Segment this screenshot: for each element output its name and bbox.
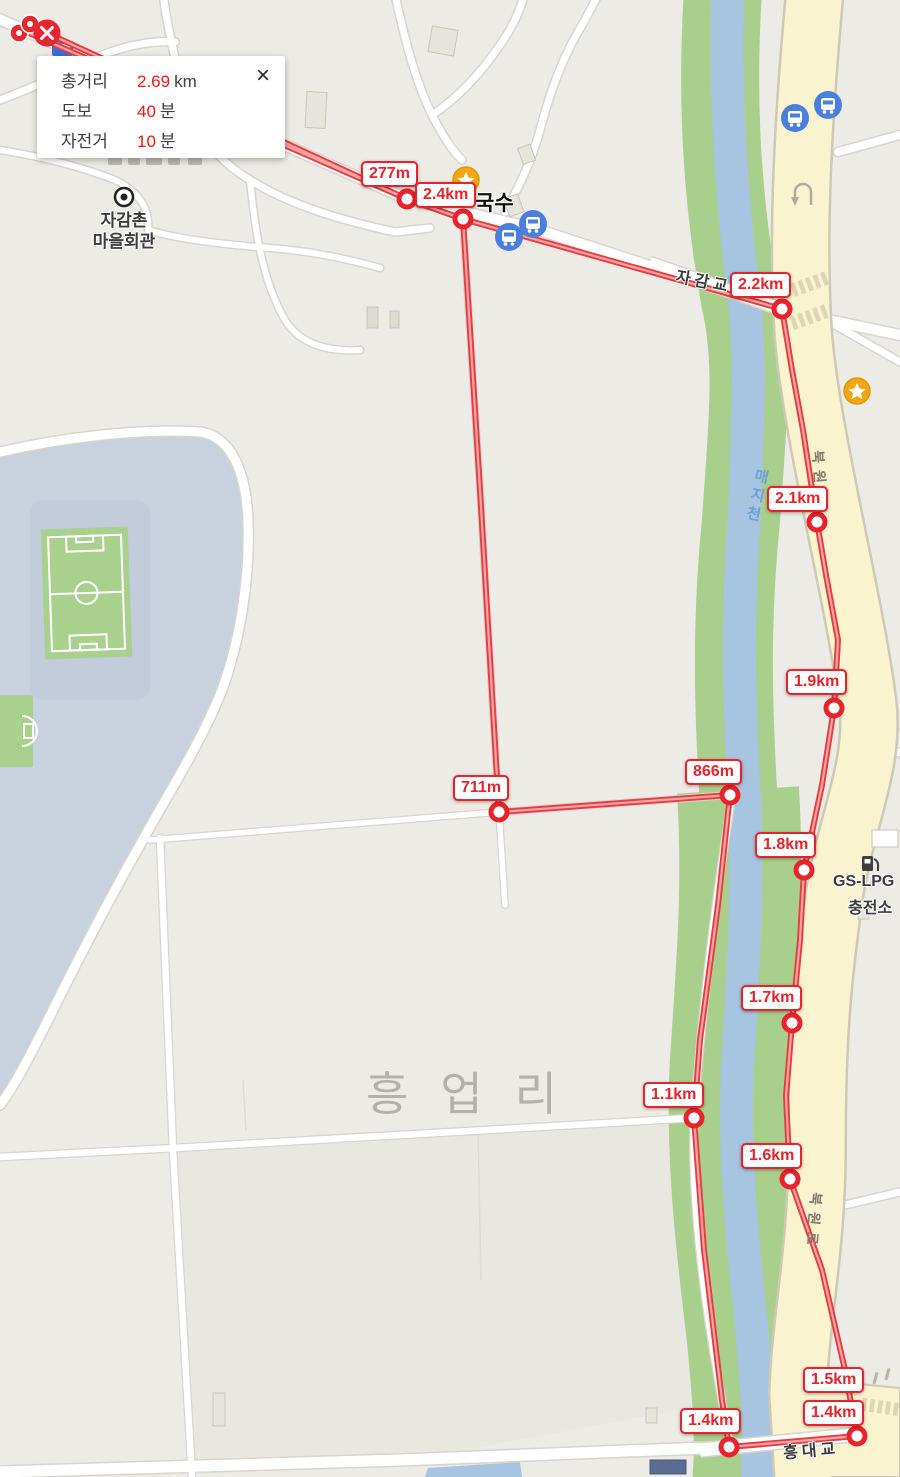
route-waypoint[interactable] [784, 1015, 800, 1031]
soccer-field-partial [0, 695, 37, 767]
route-waypoint[interactable] [809, 514, 825, 530]
field-region [178, 1120, 722, 1468]
total-distance-label: 총거리 [61, 71, 137, 93]
distance-label-1-6km: 1.6km [741, 1143, 802, 1169]
bus-stop-icon[interactable] [814, 91, 842, 119]
popup-close-button[interactable]: × [251, 64, 275, 88]
bus-stop-icon[interactable] [781, 104, 809, 132]
bridge-label-heungdae: 흥대교 [782, 1435, 840, 1464]
route-summary-popup: 총거리 2.69 km 도보 40 분 자전거 10 분 × [37, 56, 285, 158]
bicycle-time-row: 자전거 10 분 [61, 131, 271, 153]
noodle-shop-label: 국수 [475, 187, 514, 217]
route-endpoint-dot [27, 21, 33, 27]
gas-station-label-line1: GS-LPG [833, 873, 894, 891]
star-poi-icon[interactable] [844, 378, 870, 404]
distance-label-1-9km: 1.9km [786, 669, 847, 695]
route-waypoint[interactable] [721, 1439, 737, 1455]
route-waypoint[interactable] [849, 1428, 865, 1444]
route-waypoint[interactable] [722, 787, 738, 803]
walk-time-value: 40 [137, 101, 156, 123]
distance-label-1-1km: 1.1km [643, 1082, 704, 1108]
bicycle-time-label: 자전거 [61, 131, 137, 153]
district-label: 흥업리 [366, 1058, 589, 1124]
total-distance-row: 총거리 2.69 km [61, 71, 271, 93]
map-canvas[interactable]: 자감촌 마을회관 국수 자감교 흥대교 흥업리 매지천 북원로 북원로 GS-L… [0, 0, 900, 1477]
route-waypoint[interactable] [686, 1110, 702, 1126]
distance-label-1-7km: 1.7km [741, 985, 802, 1011]
route-waypoint[interactable] [796, 862, 812, 878]
bus-stop-icon[interactable] [519, 210, 547, 238]
walk-time-row: 도보 40 분 [61, 101, 271, 123]
distance-label-711m: 711m [453, 775, 509, 801]
route-waypoint[interactable] [774, 301, 790, 317]
distance-label-1-5km: 1.5km [803, 1367, 864, 1393]
route-waypoint[interactable] [399, 191, 415, 207]
route-delete-button[interactable] [34, 20, 61, 47]
gas-station-label-line2: 충전소 [848, 894, 892, 918]
route-waypoint[interactable] [491, 804, 507, 820]
village-hall-label-line2: 마을회관 [78, 227, 170, 252]
distance-label-2-2km: 2.2km [730, 272, 791, 298]
walk-time-unit: 분 [160, 101, 176, 123]
route-endpoint-dot [16, 30, 22, 36]
bus-stop-icon[interactable] [495, 223, 523, 251]
total-distance-value: 2.69 [137, 71, 170, 93]
distance-label-277m: 277m [361, 161, 418, 187]
distance-label-1-4km-right: 1.4km [803, 1400, 864, 1426]
soccer-field [41, 527, 132, 660]
total-distance-unit: km [174, 71, 197, 93]
distance-label-2-4km: 2.4km [415, 182, 476, 208]
distance-label-866m: 866m [685, 759, 742, 785]
walk-time-label: 도보 [61, 101, 137, 123]
distance-label-1-4km-left: 1.4km [680, 1408, 741, 1434]
distance-label-1-8km: 1.8km [755, 832, 816, 858]
bicycle-time-value: 10 [137, 131, 156, 153]
distance-label-2-1km: 2.1km [767, 486, 828, 512]
route-waypoint[interactable] [455, 211, 471, 227]
bicycle-time-unit: 분 [160, 131, 176, 153]
route-waypoint[interactable] [782, 1171, 798, 1187]
route-waypoint[interactable] [826, 700, 842, 716]
bullseye-icon [115, 188, 133, 206]
